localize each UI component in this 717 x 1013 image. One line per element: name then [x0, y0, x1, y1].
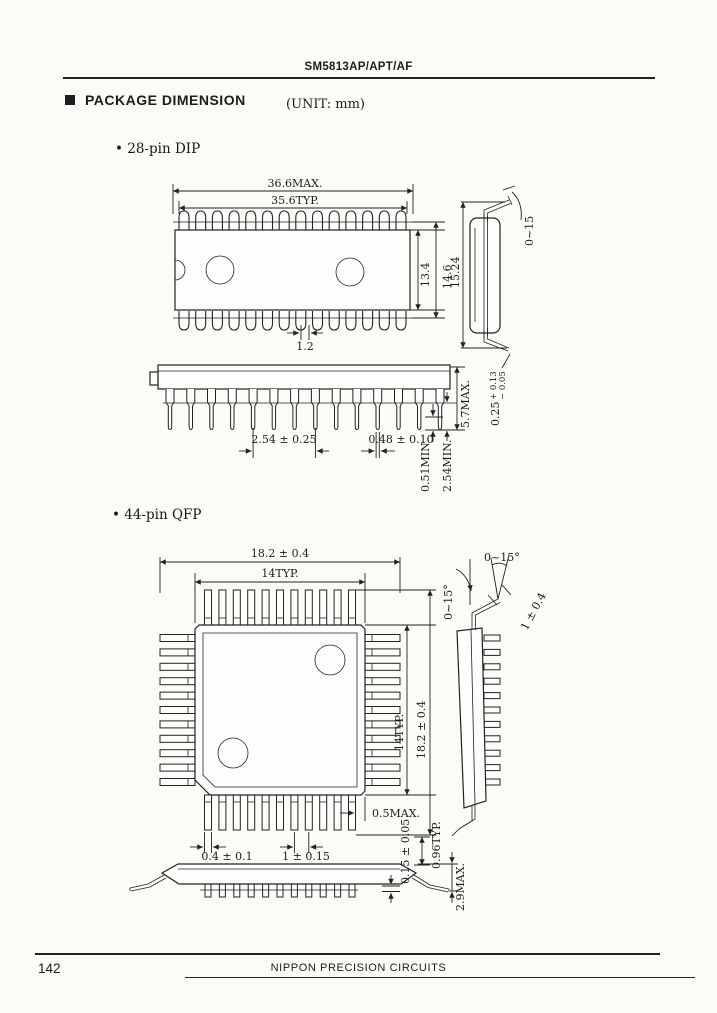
dim-dip-standoff-min: 0.51MIN.	[419, 439, 432, 492]
dim-qfp-pitch: 1 ± 0.15	[282, 850, 330, 863]
footer-company-rule	[185, 977, 695, 978]
dim-qfp-lead-angle-tip: 0~15°	[484, 551, 520, 564]
dim-dip-row-spacing: 15.24	[449, 257, 462, 289]
dim-dip-body-width: 13.4	[419, 263, 432, 288]
dim-dip-lead-thickness: 0.25 + 0.13 − 0.05	[489, 371, 508, 426]
dim-dip-pitch: 2.54 ± 0.25	[251, 433, 316, 446]
header-rule	[63, 77, 655, 79]
dim-qfp-tip-max: 0.5MAX.	[372, 807, 420, 820]
dim-qfp-overall-h: 18.2 ± 0.4	[251, 547, 309, 560]
dim-dip-height-max: 5.7MAX.	[459, 380, 472, 428]
dim-qfp-lead-width: 0.4 ± 0.1	[201, 850, 252, 863]
dim-qfp-overall-v: 18.2 ± 0.4	[415, 701, 428, 759]
qfp-package-drawing: 18.2 ± 0.4 14TYP. 14TYP. 18.2 ± 0.4 0.5M…	[100, 535, 610, 945]
dip-top-view	[173, 211, 412, 330]
section-title: PACKAGE DIMENSION	[85, 92, 246, 108]
dim-dip-overall-typ: 35.6TYP.	[271, 194, 319, 207]
dim-qfp-height-max: 2.9MAX.	[454, 863, 467, 911]
dim-dip-offset: 1.2	[296, 340, 314, 353]
unit-note: (UNIT: mm)	[286, 97, 365, 112]
dim-qfp-lead-angle-side: 0~15°	[442, 584, 455, 620]
dip-section-label: • 28-pin DIP	[115, 141, 200, 157]
dim-qfp-foot-typ: 0.96TYP.	[430, 821, 443, 869]
dim-dip-overall-max: 36.6MAX.	[267, 177, 322, 190]
qfp-side-view-right: 0~15° 0~15° 1 ± 0.4	[442, 551, 549, 836]
qfp-section-label: • 44-pin QFP	[112, 507, 201, 523]
dim-dip-lead-len-min: 2.54MIN.	[441, 439, 454, 492]
dim-dip-lead-angle: 0~15	[523, 216, 536, 246]
lead-thickness-minus: − 0.05	[498, 371, 508, 400]
section-marker-icon	[65, 95, 75, 105]
lead-thickness-base: 0.25	[489, 402, 502, 427]
document-title: SM5813AP/APT/AF	[0, 61, 717, 73]
dim-qfp-foot-len: 1 ± 0.4	[518, 590, 549, 632]
dim-qfp-body-v: 14TYP.	[393, 714, 406, 751]
dip-side-view	[150, 365, 457, 430]
datasheet-page: { "header": { "title": "SM5813AP/APT/AF"…	[0, 0, 717, 1013]
footer-rule	[35, 953, 660, 955]
qfp-top-view	[160, 590, 400, 830]
dim-qfp-thickness: 0.15 ± 0.05	[399, 819, 412, 884]
footer-company: NIPPON PRECISION CIRCUITS	[0, 962, 717, 974]
dip-package-drawing: 36.6MAX. 35.6TYP. 13.4 14.6 1.2 15.24 0~…	[95, 170, 605, 500]
dim-qfp-body-h: 14TYP.	[261, 567, 298, 580]
